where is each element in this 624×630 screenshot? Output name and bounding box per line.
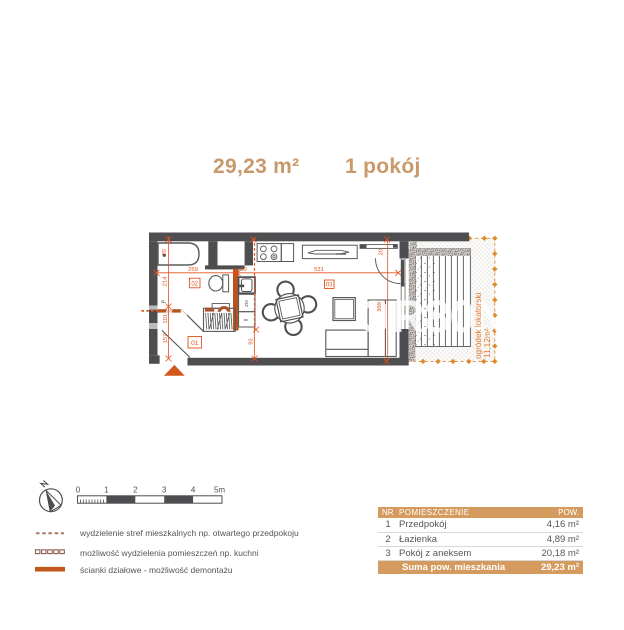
svg-text:1: 1 — [104, 486, 109, 495]
svg-text:ogródek lokatorski: ogródek lokatorski — [474, 292, 483, 359]
svg-text:2: 2 — [133, 486, 138, 495]
svg-text:4: 4 — [191, 486, 196, 495]
svg-text:03: 03 — [326, 283, 333, 289]
svg-text:399: 399 — [377, 302, 383, 312]
svg-text:214: 214 — [162, 276, 168, 286]
svg-text:ZM: ZM — [244, 300, 250, 307]
svg-text:20: 20 — [378, 249, 384, 255]
svg-text:01: 01 — [191, 340, 199, 347]
svg-text:5m: 5m — [214, 486, 225, 495]
svg-text:20: 20 — [162, 249, 168, 255]
svg-text:101: 101 — [163, 314, 169, 324]
svg-text:92: 92 — [249, 338, 255, 344]
svg-text:11,12m²: 11,12m² — [483, 328, 492, 358]
svg-text:157: 157 — [163, 334, 169, 344]
svg-text:02: 02 — [191, 282, 198, 288]
svg-text:0: 0 — [76, 486, 81, 495]
svg-text:3: 3 — [162, 486, 167, 495]
svg-text:259: 259 — [188, 267, 198, 273]
svg-text:P: P — [162, 300, 168, 304]
svg-text:10: 10 — [240, 267, 246, 273]
svg-text:531: 531 — [314, 267, 324, 273]
